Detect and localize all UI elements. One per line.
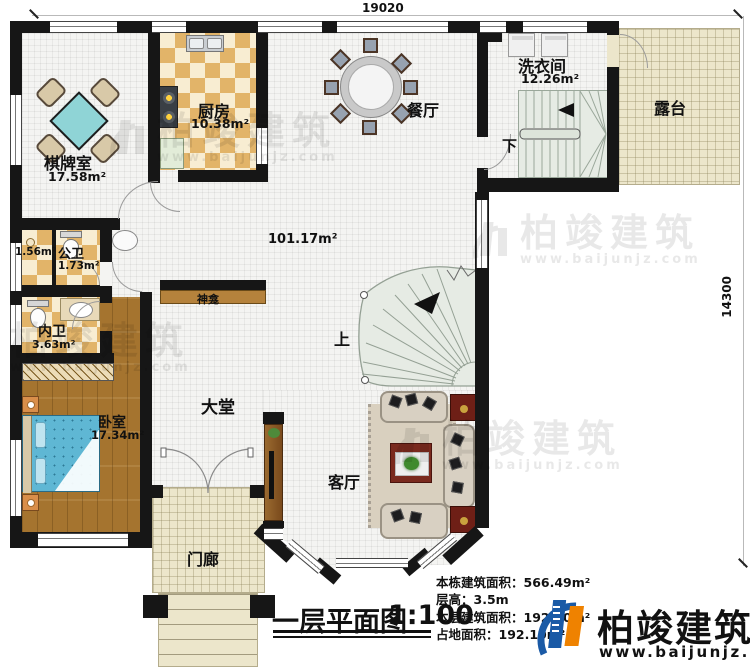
room-area-chess: 17.58m² [48, 169, 106, 184]
wall-under-stair [477, 178, 619, 192]
window-bedroom-bottom [38, 533, 128, 547]
watermark-site: www.baijunjz.com [520, 252, 701, 267]
wall-chess-right [148, 33, 160, 183]
plant-icon [268, 428, 280, 438]
nightstand [22, 494, 39, 511]
window-top-kitchen [152, 21, 186, 33]
fridge [160, 138, 184, 169]
window-living-right [476, 200, 488, 268]
plant-icon [404, 457, 419, 470]
wall-bath-mid [10, 285, 112, 297]
porch-pillar-left [143, 595, 168, 618]
wall-kitchen-bottom [178, 170, 268, 182]
room-label-dining: 餐厅 [407, 97, 439, 121]
room-area-shower: 1.56m² [15, 246, 56, 258]
dimension-height: 14300 [720, 276, 734, 318]
entry-double-door [160, 446, 254, 496]
room-area-laundry: 12.26m² [521, 71, 579, 86]
stove [159, 86, 178, 128]
window-kitchen-right [256, 128, 268, 164]
dining-chair [324, 80, 339, 95]
watermark: 柏竣建筑 www.baijunjz.com [468, 214, 701, 267]
wardrobe [22, 363, 114, 381]
dimension-tick [29, 9, 39, 19]
room-label-porch: 门廊 [187, 546, 219, 570]
floor-porch [152, 487, 265, 593]
room-area-inner-bath: 3.63m² [32, 338, 75, 351]
wall-shrine [160, 280, 266, 290]
watermark-name: 柏竣建筑 [520, 214, 701, 252]
bed-pillow [35, 422, 46, 448]
end-table [450, 394, 476, 421]
sofa-cushion [409, 511, 422, 524]
stair-down [518, 90, 608, 178]
window-top-chess [50, 21, 117, 33]
toilet-icon [27, 300, 49, 307]
door-opening-terrace [607, 35, 619, 67]
door-opening-inner-bath [100, 303, 112, 331]
tv-icon [269, 451, 274, 499]
window-tv-under [264, 528, 283, 540]
tv-cabinet [264, 424, 283, 521]
door-leaf-icon [248, 448, 253, 457]
room-area-hall: 101.17m² [268, 232, 337, 247]
floor-plan: 19020 14300 棋牌室 17.58m² 厨房 10.38m² 餐厅 洗衣… [0, 0, 750, 669]
room-area-public-bath: 1.73m² [58, 260, 99, 272]
kitchen-sink [186, 35, 224, 52]
dimension-line-top [32, 15, 740, 16]
sofa-cushion [451, 481, 464, 494]
window-top-laundry-2 [523, 21, 587, 33]
shrine-label: 神龛 [197, 291, 219, 307]
stat-floor-height: 层高：3.5m [436, 589, 509, 608]
window-left-innerbath [10, 305, 22, 345]
room-label-terrace: 露台 [654, 95, 686, 119]
wall-chess-bottom [10, 218, 120, 230]
dimension-line-right [743, 16, 744, 566]
dining-chair [362, 120, 377, 135]
window-left-chess [10, 95, 22, 165]
window-left-bedroom [10, 440, 22, 516]
room-area-kitchen: 10.38m² [191, 116, 249, 131]
room-label-hall: 大堂 [201, 393, 235, 418]
coffee-table [390, 443, 432, 483]
door-opening-public-bath [100, 262, 112, 286]
window-bay-bottom [336, 558, 408, 568]
dining-chair [363, 38, 378, 53]
door-leaf-icon [161, 448, 166, 457]
stair-up-curved [352, 262, 478, 388]
dining-chair [403, 80, 418, 95]
bed [22, 415, 100, 492]
room-label-living: 客厅 [328, 469, 360, 493]
brand-website: www.baijunjz.com [599, 643, 750, 661]
window-top-dining-1 [258, 21, 322, 33]
porch-steps [158, 593, 258, 667]
brand-logo-icon [536, 592, 594, 662]
stair-up-label: 上 [334, 326, 350, 350]
nightstand [22, 396, 39, 413]
window-top-dining-2 [337, 21, 448, 33]
stair-down-label: 下 [502, 135, 517, 156]
room-area-bedroom: 17.34m² [91, 428, 144, 442]
window-top-laundry-1 [480, 21, 506, 33]
dimension-width: 19020 [362, 1, 404, 15]
bed-headboard [23, 416, 32, 493]
wall-laundry-stub [483, 33, 502, 42]
wall-tv-top [263, 412, 284, 424]
toilet-icon [60, 231, 82, 238]
wall-innerbath-bottom [10, 353, 114, 363]
hall-sink-icon [112, 230, 138, 251]
dimension-tick [733, 9, 743, 19]
title-underline [273, 630, 431, 638]
bed-pillow [35, 458, 46, 484]
